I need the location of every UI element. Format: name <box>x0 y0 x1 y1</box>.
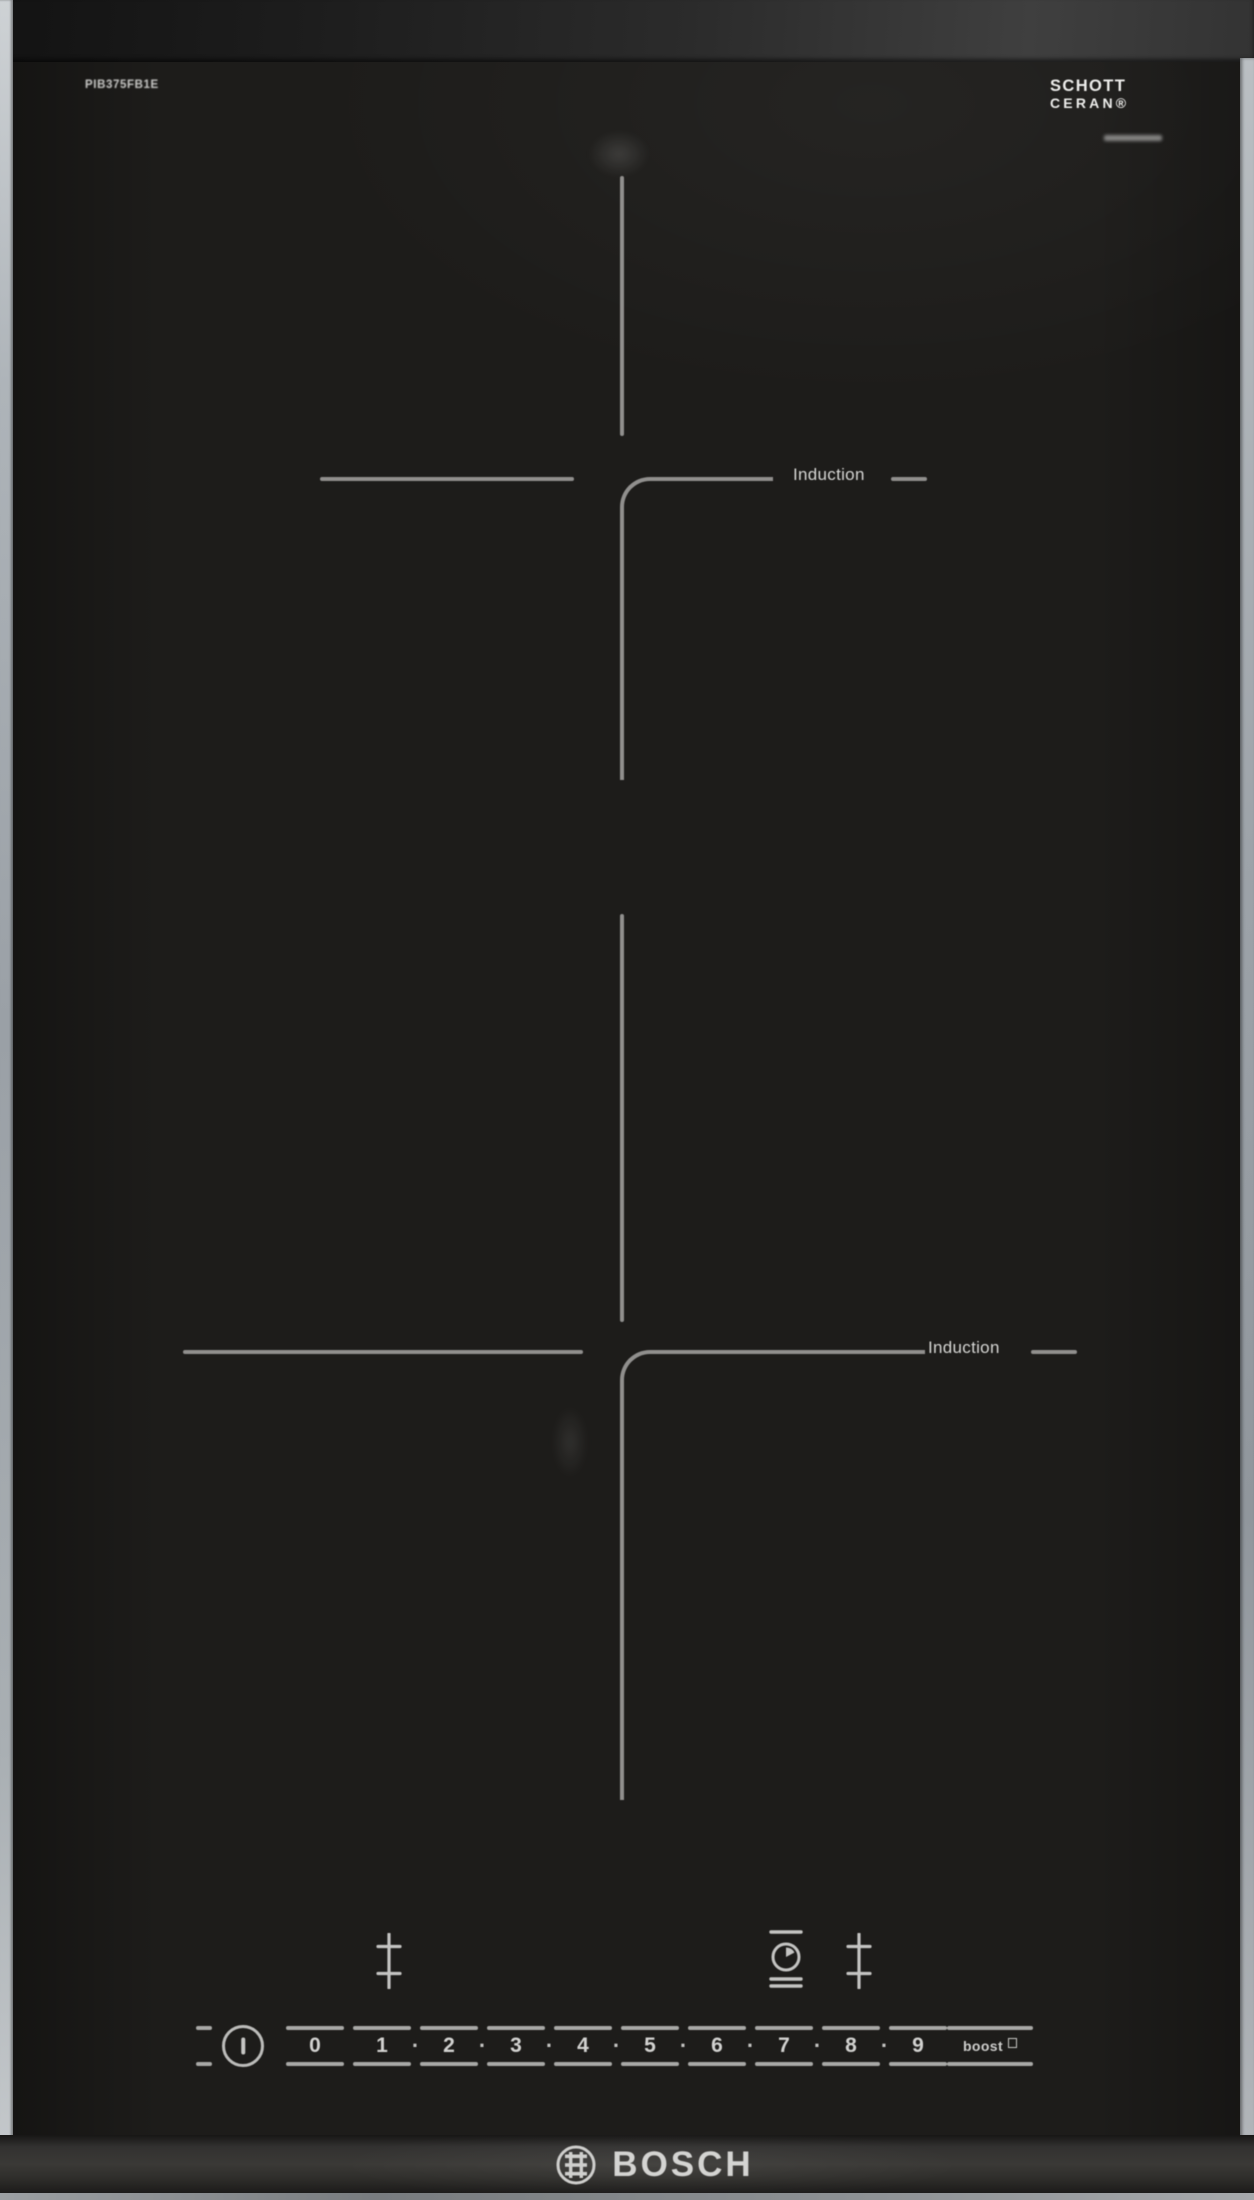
power-level-6[interactable]: 6 <box>688 2026 746 2066</box>
zone2-induction-label: Induction <box>928 1338 1000 1358</box>
power-level-4[interactable]: 4 <box>554 2026 612 2066</box>
bosch-armature-icon <box>554 2143 598 2187</box>
power-level-1[interactable]: 1 <box>353 2026 411 2066</box>
induction-hob: PIB375FB1E SCHOTT CERAN® Induction Induc… <box>0 0 1254 2200</box>
power-level-2[interactable]: 2 <box>420 2026 478 2066</box>
power-level-3[interactable]: 3 <box>487 2026 545 2066</box>
level-separator-dot: · <box>746 2026 755 2066</box>
power-level-9[interactable]: 9 <box>889 2026 947 2066</box>
level-separator-dot: · <box>545 2026 554 2066</box>
power-level-8[interactable]: 8 <box>822 2026 880 2066</box>
level-separator-dot: · <box>612 2026 621 2066</box>
zone1-select-icon[interactable] <box>375 1933 403 1989</box>
zone1-cross-horizontal-line <box>320 477 574 481</box>
bosch-logo: BOSCH <box>0 2142 1254 2188</box>
power-level-slider[interactable]: 0 1 · 2 · 3 · 4 · 5 · 6 · 7 · 8 · 9 boos… <box>196 2026 1033 2066</box>
power-level-7[interactable]: 7 <box>755 2026 813 2066</box>
level-separator-dot: · <box>478 2026 487 2066</box>
slider-left-stub <box>196 2026 212 2066</box>
bosch-brand-text: BOSCH <box>612 2145 753 2185</box>
zone1-corner-outline <box>620 477 773 780</box>
level-gap <box>344 2026 353 2066</box>
boost-button[interactable]: boost <box>947 2026 1033 2066</box>
zone1-trailing-dash <box>891 477 927 481</box>
power-level-5[interactable]: 5 <box>621 2026 679 2066</box>
zone2-select-icon[interactable] <box>845 1933 873 1989</box>
boost-square-icon <box>1008 2038 1017 2048</box>
zone-markings: Induction Induction <box>0 0 1254 2200</box>
zone1-cross-vertical-line <box>620 176 624 436</box>
boost-label: boost <box>963 2038 1003 2054</box>
level-separator-dot: · <box>813 2026 822 2066</box>
level-separator-dot: · <box>880 2026 889 2066</box>
zone2-trailing-dash <box>1031 1350 1077 1354</box>
zone1-induction-label: Induction <box>793 465 865 485</box>
power-level-0[interactable]: 0 <box>286 2026 344 2066</box>
zone2-corner-outline <box>620 1350 925 1800</box>
zone2-cross-horizontal-line <box>183 1350 583 1354</box>
level-separator-dot: · <box>411 2026 420 2066</box>
zone2-cross-vertical-line <box>620 914 624 1322</box>
level-separator-dot: · <box>679 2026 688 2066</box>
power-button[interactable] <box>222 2025 264 2067</box>
timer-icon[interactable] <box>766 1930 806 1990</box>
